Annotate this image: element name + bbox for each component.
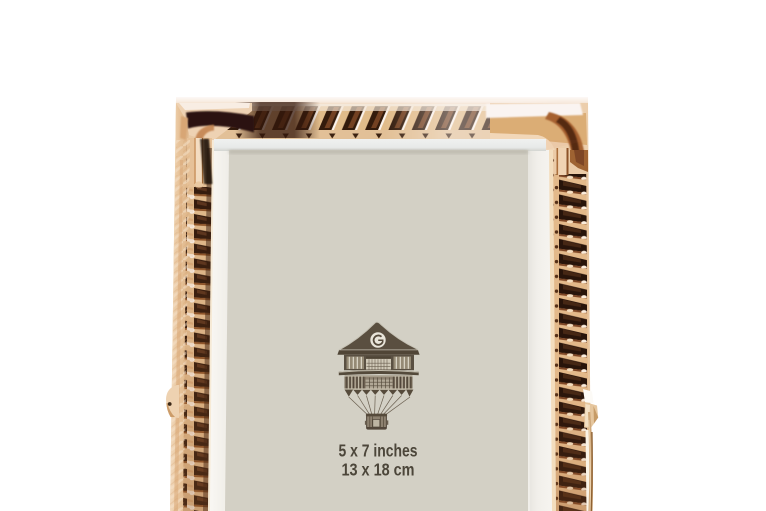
svg-text:5 x 7 inches: 5 x 7 inches	[339, 441, 418, 461]
svg-text:13 x 18 cm: 13 x 18 cm	[342, 460, 415, 480]
